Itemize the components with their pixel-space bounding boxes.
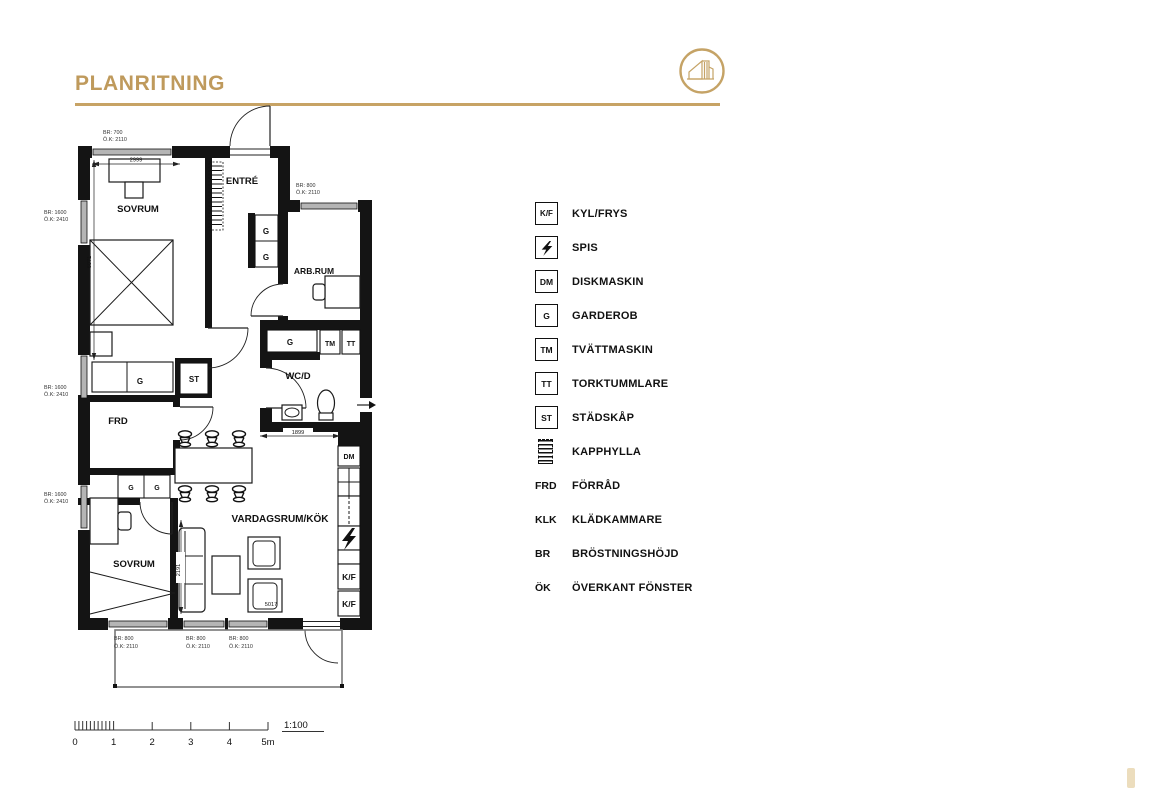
- window-bottom-2: [184, 621, 224, 627]
- svg-text:G: G: [128, 485, 134, 492]
- g-symbol: G: [535, 304, 558, 327]
- toilet: [318, 390, 335, 416]
- floor-plan: 2999 6071 1899 2191 5017 BR: 700 Ö.K: 21…: [30, 100, 390, 700]
- dim-2999: 2999: [130, 158, 142, 164]
- dim-2191: 2191: [176, 564, 182, 576]
- page-marker: [1127, 768, 1135, 788]
- scale-tick-3: 3: [188, 737, 193, 748]
- arbrum-door: [251, 284, 283, 316]
- scale-tick-4: 4: [227, 737, 232, 748]
- svg-text:Ö.K: 2410: Ö.K: 2410: [44, 498, 68, 505]
- ann-top-ok: Ö.K: 2110: [103, 136, 127, 143]
- scale-tick-1: 1: [111, 737, 116, 748]
- hall-closet: [92, 362, 173, 392]
- legend-row-kapphylla: KAPPHYLLA: [535, 440, 693, 463]
- room-label-sovrum-1: SOVRUM: [117, 204, 159, 215]
- chair-arbrum: [313, 284, 325, 300]
- desk-arbrum: [325, 276, 360, 308]
- ann-arbrum-ok: Ö.K: 2110: [296, 189, 320, 196]
- svg-text:DM: DM: [344, 454, 355, 461]
- klk-symbol: KLK: [535, 514, 557, 526]
- svg-text:BR: 800: BR: 800: [114, 636, 133, 642]
- room-label-sovrum-2: SOVRUM: [113, 559, 155, 570]
- sovrum2-door: [140, 502, 172, 534]
- svg-text:BR: 800: BR: 800: [229, 636, 248, 642]
- room-label-frd: FRD: [108, 416, 128, 427]
- scale-tick-2: 2: [150, 737, 155, 748]
- page-title: PLANRITNING: [75, 72, 225, 96]
- vent-arrow-icon: [357, 398, 376, 412]
- legend-row-torktummlare: TT TORKTUMMLARE: [535, 372, 693, 395]
- svg-text:Ö.K: 2410: Ö.K: 2410: [44, 216, 68, 223]
- svg-text:Ö.K: 2110: Ö.K: 2110: [114, 643, 138, 650]
- window-bottom-1: [109, 621, 167, 627]
- dim-1899: 1899: [292, 430, 304, 436]
- window-arbrum: [301, 203, 357, 209]
- legend: K/F KYL/FRYS SPIS DM DISKMASKIN G GARDER…: [535, 202, 693, 610]
- legend-row-diskmaskin: DM DISKMASKIN: [535, 270, 693, 293]
- kitchen-appliances: [338, 446, 360, 616]
- frd-symbol: FRD: [535, 480, 557, 492]
- ok-symbol: ÖK: [535, 582, 551, 594]
- svg-text:G: G: [287, 338, 293, 347]
- tm-symbol: TM: [535, 338, 558, 361]
- legend-row-stadskap: ST STÄDSKÅP: [535, 406, 693, 429]
- svg-text:K/F: K/F: [342, 599, 356, 609]
- svg-text:Ö.K: 2110: Ö.K: 2110: [186, 643, 210, 650]
- st-symbol: ST: [535, 406, 558, 429]
- frd-door: [180, 407, 213, 440]
- scale-ratio: 1:100: [284, 720, 308, 731]
- dining-table: [175, 448, 252, 483]
- room-label-entre: ENTRÉ: [226, 176, 258, 187]
- room-label-vardagsrum: VARDAGSRUM/KÖK: [231, 512, 329, 525]
- nightstand: [90, 332, 112, 356]
- svg-text:BR: 800: BR: 800: [186, 636, 205, 642]
- bed-sovrum2: [90, 572, 175, 614]
- room-label-arbrum: ARB.RUM: [294, 266, 334, 276]
- window-left-3: [81, 486, 87, 528]
- dim-5017: 5017: [265, 602, 277, 608]
- coffee-table: [212, 556, 240, 594]
- br-symbol: BR: [535, 548, 550, 560]
- legend-row-forrad: FRD FÖRRÅD: [535, 474, 693, 497]
- ann-arbrum-br: BR: 800: [296, 183, 315, 189]
- sovrum1-door: [208, 328, 248, 368]
- legend-row-brostningshojd: BR BRÖSTNINGSHÖJD: [535, 542, 693, 565]
- window-left-1: [81, 201, 87, 243]
- window-left-2: [81, 356, 87, 398]
- planritning-page: PLANRITNING: [0, 0, 1175, 800]
- tt-symbol: TT: [535, 372, 558, 395]
- builder-logo-icon: [678, 47, 726, 95]
- legend-row-kylfrys: K/F KYL/FRYS: [535, 202, 693, 225]
- legend-row-kladkammare: KLK KLÄDKAMMARE: [535, 508, 693, 531]
- desk-sovrum2: [90, 498, 118, 544]
- svg-text:G: G: [154, 485, 160, 492]
- svg-text:ST: ST: [189, 375, 199, 384]
- kf-symbol: K/F: [535, 202, 558, 225]
- kapphylla-icon: [538, 439, 553, 464]
- svg-text:BR: 1600: BR: 1600: [44, 492, 66, 498]
- scale-tick-0: 0: [72, 737, 77, 748]
- svg-text:Ö.K: 2110: Ö.K: 2110: [229, 643, 253, 650]
- legend-row-tvattmaskin: TM TVÄTTMASKIN: [535, 338, 693, 361]
- svg-text:G: G: [263, 253, 269, 262]
- dm-symbol: DM: [535, 270, 558, 293]
- ann-top-br: BR: 700: [103, 130, 122, 136]
- balcony-door: [303, 622, 340, 664]
- svg-text:G: G: [137, 377, 143, 386]
- svg-text:TT: TT: [347, 341, 356, 348]
- svg-text:TM: TM: [325, 341, 335, 348]
- entrance-door: [230, 106, 270, 155]
- spis-lightning-icon: [535, 236, 558, 259]
- legend-row-spis: SPIS: [535, 236, 693, 259]
- svg-text:K/F: K/F: [342, 572, 356, 582]
- scale-tick-5: 5m: [261, 737, 274, 748]
- scale-bar: 0 1 2 3 4 5m 1:100: [60, 710, 330, 755]
- window-bottom-3: [229, 621, 267, 627]
- legend-row-garderob: G GARDEROB: [535, 304, 693, 327]
- legend-row-overkant-fonster: ÖK ÖVERKANT FÖNSTER: [535, 576, 693, 599]
- svg-text:BR: 1600: BR: 1600: [44, 210, 66, 216]
- svg-text:Ö.K: 2410: Ö.K: 2410: [44, 391, 68, 398]
- svg-text:G: G: [263, 227, 269, 236]
- svg-text:BR: 1600: BR: 1600: [44, 385, 66, 391]
- chair-sovrum2: [118, 512, 131, 530]
- room-label-wcd: WC/D: [285, 371, 310, 382]
- window-top: [93, 149, 171, 155]
- dim-6071: 6071: [87, 256, 93, 268]
